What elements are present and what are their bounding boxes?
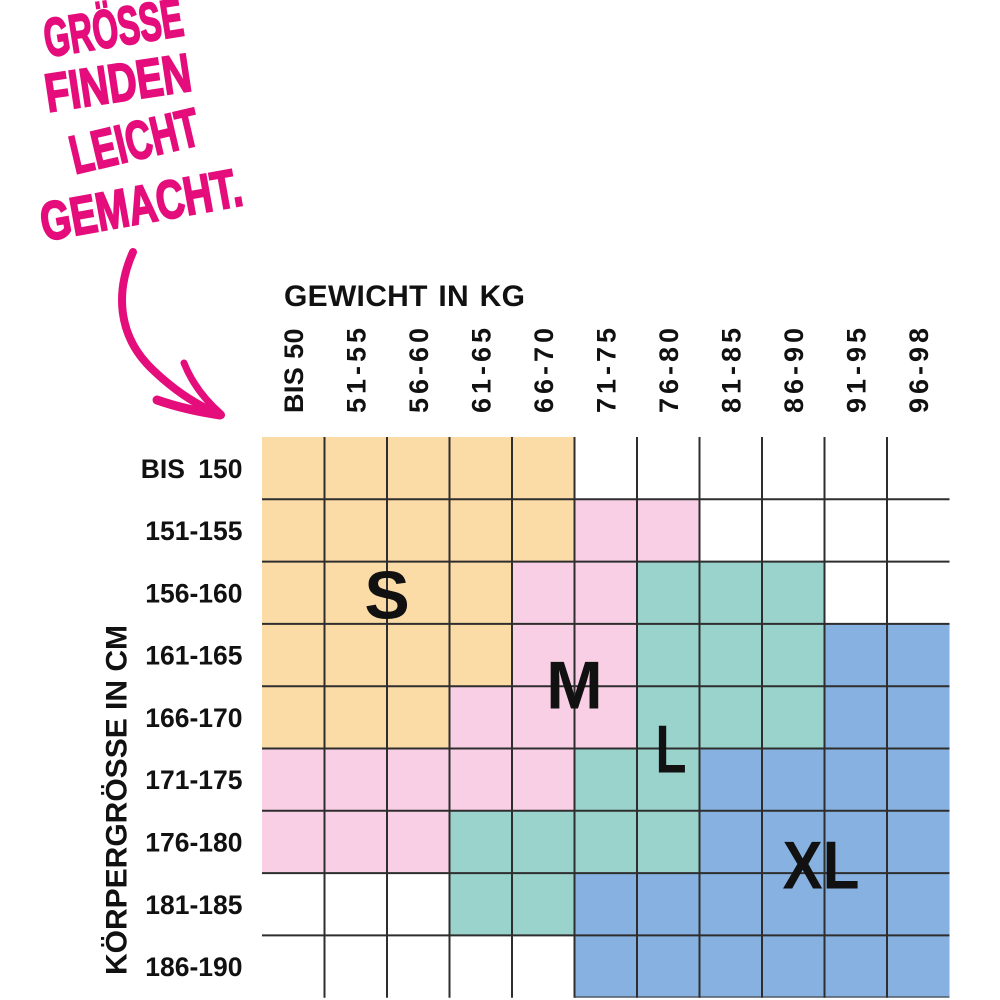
svg-text:171-175: 171-175 — [145, 765, 242, 795]
svg-text:61-65: 61-65 — [467, 324, 497, 413]
svg-text:161-165: 161-165 — [145, 641, 242, 671]
svg-text:91-95: 91-95 — [842, 324, 872, 413]
svg-text:71-75: 71-75 — [592, 324, 622, 413]
svg-text:KÖRPERGRÖSSE IN CM: KÖRPERGRÖSSE IN CM — [101, 625, 134, 975]
svg-text:M: M — [546, 647, 603, 723]
svg-text:56-60: 56-60 — [404, 324, 434, 413]
svg-text:BIS 150: BIS 150 — [141, 454, 243, 484]
svg-text:L: L — [656, 711, 687, 787]
svg-text:S: S — [364, 557, 409, 633]
svg-text:76-80: 76-80 — [654, 324, 684, 413]
svg-text:XL: XL — [783, 827, 860, 903]
svg-text:81-85: 81-85 — [717, 324, 747, 413]
svg-text:181-185: 181-185 — [145, 890, 242, 920]
svg-text:186-190: 186-190 — [145, 952, 242, 982]
svg-text:156-160: 156-160 — [145, 578, 242, 608]
svg-text:GEWICHT IN KG: GEWICHT IN KG — [284, 280, 525, 313]
svg-text:BIS 50: BIS 50 — [279, 328, 309, 413]
svg-text:166-170: 166-170 — [145, 703, 242, 733]
svg-text:151-155: 151-155 — [145, 516, 242, 546]
svg-text:96-98: 96-98 — [904, 324, 934, 413]
svg-text:66-70: 66-70 — [529, 324, 559, 413]
svg-text:51-55: 51-55 — [342, 324, 372, 413]
svg-text:86-90: 86-90 — [779, 324, 809, 413]
svg-text:176-180: 176-180 — [145, 828, 242, 858]
